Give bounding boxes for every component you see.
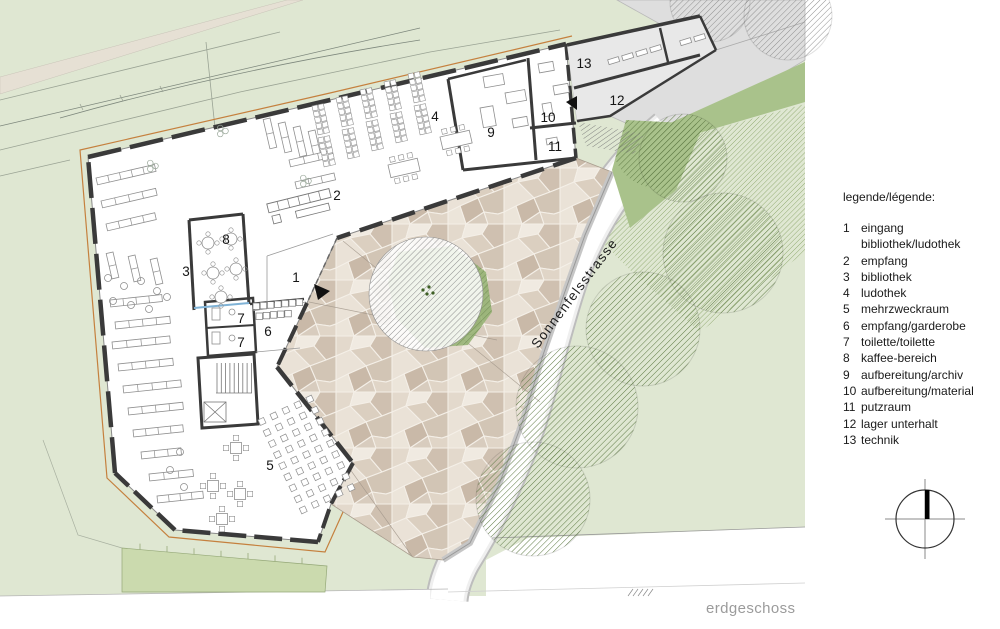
legend-item-number: 6 (843, 318, 861, 334)
legend-item-number: 2 (843, 253, 861, 269)
room-number-label: 8 (222, 232, 230, 247)
legend-item-label: aufbereitung/archiv (861, 367, 963, 383)
room-number-label: 4 (431, 109, 439, 124)
legend-item: 4ludothek (843, 285, 998, 301)
room-number-label: 13 (576, 56, 591, 71)
legend-item: 7toilette/toilette (843, 334, 998, 350)
tree-icon (476, 442, 590, 556)
legend-item-label: kaffee-bereich (861, 350, 937, 366)
legend-item-number: 4 (843, 285, 861, 301)
legend-item-number: 1 (843, 220, 861, 253)
legend-item-number: 7 (843, 334, 861, 350)
north-compass-icon (885, 479, 965, 559)
legend-item-label: mehrzweckraum (861, 301, 949, 317)
legend-item-label: lager unterhalt (861, 416, 938, 432)
tree-icon (639, 114, 727, 202)
room-number-label: 7 (237, 335, 245, 350)
legend-item-number: 11 (843, 399, 861, 415)
legend-items: 1eingang bibliothek/ludothek2empfang3bib… (843, 220, 998, 448)
legend-item-number: 13 (843, 432, 861, 448)
legend-item: 11putzraum (843, 399, 998, 415)
room-number-label: 5 (266, 458, 274, 473)
room-number-label: 3 (182, 264, 190, 279)
floor-plan-page: 123456778910111213 Sonnenfelsstrasse leg… (0, 0, 1000, 629)
legend-item: 10aufbereitung/material (843, 383, 998, 399)
legend-item-number: 10 (843, 383, 861, 399)
legend-item-number: 3 (843, 269, 861, 285)
room-number-label: 12 (609, 93, 624, 108)
room-number-label: 2 (333, 188, 341, 203)
legend-item-number: 5 (843, 301, 861, 317)
legend-item: 13technik (843, 432, 998, 448)
legend-item: 2empfang (843, 253, 998, 269)
legend-item: 3bibliothek (843, 269, 998, 285)
legend-item: 9aufbereitung/archiv (843, 367, 998, 383)
legend-heading: legende/légende: (843, 190, 998, 204)
room-number-label: 11 (548, 139, 562, 154)
legend-item-label: putzraum (861, 399, 911, 415)
legend-item-label: empfang/garderobe (861, 318, 966, 334)
legend-item: 5mehrzweckraum (843, 301, 998, 317)
legend-item-label: toilette/toilette (861, 334, 935, 350)
room-number-label: 7 (237, 311, 245, 326)
legend-item: 8kaffee-bereich (843, 350, 998, 366)
north-needle (925, 490, 930, 519)
legend-item-number: 12 (843, 416, 861, 432)
legend-item: 1eingang bibliothek/ludothek (843, 220, 998, 253)
legend-item: 12lager unterhalt (843, 416, 998, 432)
room-number-label: 6 (264, 324, 272, 339)
legend-item-label: bibliothek (861, 269, 912, 285)
legend: legende/légende: 1eingang bibliothek/lud… (843, 190, 998, 448)
legend-item: 6empfang/garderobe (843, 318, 998, 334)
floor-title: erdgeschoss (706, 600, 795, 617)
legend-item-label: ludothek (861, 285, 906, 301)
legend-item-label: technik (861, 432, 899, 448)
legend-item-label: empfang (861, 253, 908, 269)
legend-item-label: aufbereitung/material (861, 383, 974, 399)
room-number-label: 9 (487, 125, 495, 140)
legend-item-number: 9 (843, 367, 861, 383)
room-number-label: 1 (292, 270, 300, 285)
room-number-label: 10 (540, 110, 555, 125)
legend-item-label: eingang bibliothek/ludothek (861, 220, 998, 253)
legend-item-number: 8 (843, 350, 861, 366)
